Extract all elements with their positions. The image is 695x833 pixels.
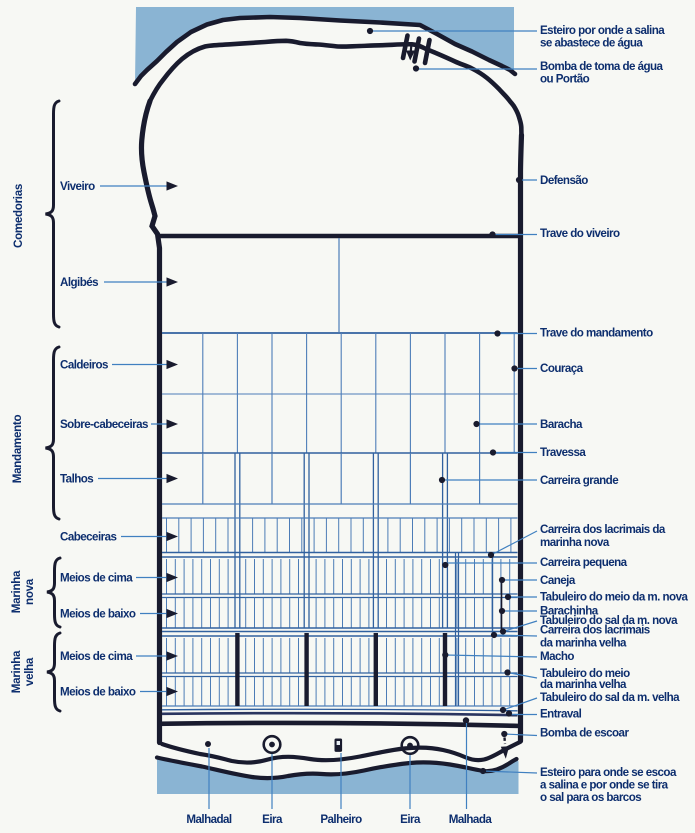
svg-text:Baracha: Baracha bbox=[540, 418, 583, 431]
svg-text:Malhadal: Malhadal bbox=[186, 813, 232, 826]
svg-text:Carreira dos lacrimais: Carreira dos lacrimais bbox=[540, 624, 650, 637]
svg-text:Meios de cima: Meios de cima bbox=[60, 572, 133, 585]
svg-text:Carreira dos lacrimais da: Carreira dos lacrimais da bbox=[540, 523, 666, 536]
svg-text:Meios de cima: Meios de cima bbox=[60, 650, 133, 663]
svg-text:Defensão: Defensão bbox=[540, 174, 588, 187]
svg-text:Meios de baixo: Meios de baixo bbox=[60, 686, 136, 699]
svg-text:se abastece de água: se abastece de água bbox=[540, 37, 643, 50]
svg-text:Tabuleiro do sal da m. velha: Tabuleiro do sal da m. velha bbox=[540, 691, 680, 704]
svg-text:Cabeceiras: Cabeceiras bbox=[60, 531, 116, 544]
svg-text:Algibés: Algibés bbox=[60, 276, 98, 289]
svg-text:Esteiro por onde a salina: Esteiro por onde a salina bbox=[540, 24, 665, 37]
svg-text:Trave do mandamento: Trave do mandamento bbox=[540, 327, 653, 340]
svg-text:Tabuleiro do meio da m. nova: Tabuleiro do meio da m. nova bbox=[540, 591, 688, 604]
svg-text:Caneja: Caneja bbox=[540, 574, 576, 587]
svg-text:Eira: Eira bbox=[262, 813, 283, 826]
svg-text:Viveiro: Viveiro bbox=[60, 180, 95, 193]
svg-text:Bomba de escoar: Bomba de escoar bbox=[540, 727, 629, 740]
svg-text:Comedorias: Comedorias bbox=[12, 184, 25, 248]
svg-text:a salina e por onde se tira: a salina e por onde se tira bbox=[540, 779, 669, 792]
svg-text:Sobre-cabeceiras: Sobre-cabeceiras bbox=[60, 418, 148, 431]
svg-text:da marinha velha: da marinha velha bbox=[540, 637, 627, 650]
svg-text:Caldeiros: Caldeiros bbox=[60, 359, 108, 372]
svg-text:Carreira grande: Carreira grande bbox=[540, 474, 619, 487]
svg-text:Palheiro: Palheiro bbox=[320, 813, 362, 826]
svg-text:Malhada: Malhada bbox=[449, 813, 493, 826]
svg-text:ou Portão: ou Portão bbox=[540, 73, 590, 86]
svg-text:o sal para os barcos: o sal para os barcos bbox=[540, 791, 641, 804]
svg-text:Macho: Macho bbox=[540, 650, 574, 663]
svg-text:da marinha velha: da marinha velha bbox=[540, 678, 627, 691]
svg-text:velha: velha bbox=[23, 657, 36, 686]
svg-text:Talhos: Talhos bbox=[60, 473, 93, 486]
svg-text:marinha nova: marinha nova bbox=[540, 536, 610, 549]
svg-text:Eira: Eira bbox=[400, 813, 421, 826]
svg-text:Entraval: Entraval bbox=[540, 708, 582, 721]
svg-text:nova: nova bbox=[23, 578, 36, 605]
svg-text:Carreira pequena: Carreira pequena bbox=[540, 556, 628, 569]
svg-text:Marinha: Marinha bbox=[10, 650, 23, 693]
svg-text:Marinha: Marinha bbox=[10, 570, 23, 613]
svg-text:Esteiro para onde se escoa: Esteiro para onde se escoa bbox=[540, 766, 677, 779]
svg-text:Bomba de toma de água: Bomba de toma de água bbox=[540, 60, 664, 73]
svg-text:Couraça: Couraça bbox=[540, 362, 584, 375]
svg-text:Travessa: Travessa bbox=[540, 446, 586, 459]
svg-text:Trave do viveiro: Trave do viveiro bbox=[540, 227, 620, 240]
svg-text:Mandamento: Mandamento bbox=[11, 415, 24, 484]
svg-text:Meios de baixo: Meios de baixo bbox=[60, 608, 136, 621]
